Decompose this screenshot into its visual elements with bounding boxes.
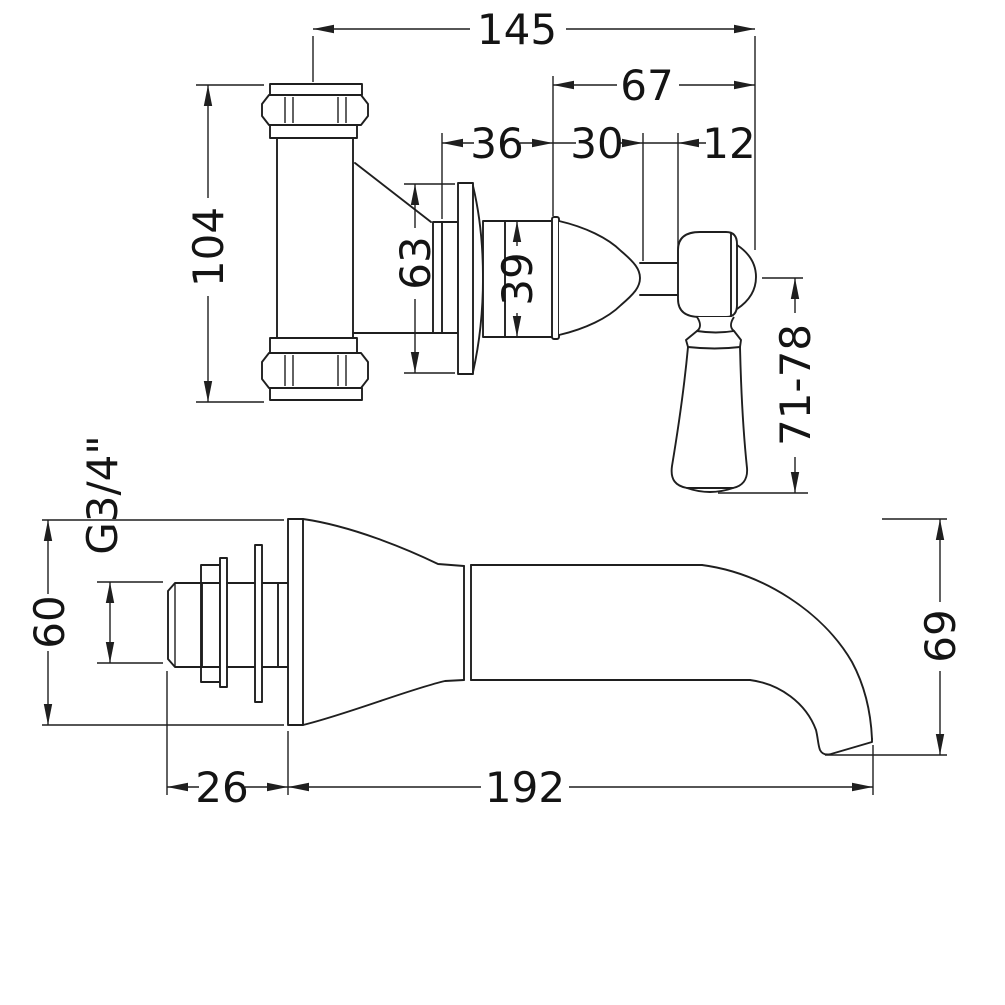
spout-thread-tail: [168, 583, 202, 667]
tee-bottom-hex-nut: [262, 353, 368, 388]
handle-stem: [640, 263, 678, 295]
dim-label-thread-size: G3/4": [78, 435, 127, 554]
handle-hub-dome: [737, 245, 756, 309]
spout-washer-inner: [220, 558, 227, 687]
handle-lever: [672, 317, 747, 488]
tap-dimension-drawing: 145 67 36 30 12 104 63 39 71-78 G3/4" 60…: [0, 0, 1005, 1005]
spout-flare-top: [303, 519, 464, 566]
valve-cartridge-cone: [559, 221, 640, 335]
tee-bottom-cap: [270, 388, 362, 400]
dim-label-cartridge-height: 39: [493, 252, 542, 305]
handle-hub: [678, 232, 737, 317]
tee-top-cap: [270, 84, 362, 95]
dim-label-backplate-height: 63: [391, 236, 440, 289]
tee-body: [277, 138, 353, 338]
dim-label-body-height: 104: [184, 207, 233, 287]
dim-label-overall-width: 145: [477, 5, 557, 54]
dim-label-thread-length: 26: [195, 763, 248, 812]
dim-label-stem-width: 12: [702, 119, 755, 168]
tee-top-hex-nut: [262, 95, 368, 125]
spout-elevation: [168, 519, 872, 755]
valve-backplate: [458, 183, 473, 374]
spout-tip: [750, 680, 872, 755]
dim-label-body-to-flange: 36: [470, 119, 523, 168]
tee-top-collar: [270, 125, 357, 138]
spout-dimensions: [42, 519, 947, 795]
spout-outer-curve: [702, 565, 872, 739]
dim-label-handle-drop-range: 71-78: [771, 324, 820, 446]
dim-label-handle-projection: 67: [620, 61, 673, 110]
spout-wall-plate: [288, 519, 303, 725]
technical-drawing-page: 145 67 36 30 12 104 63 39 71-78 G3/4" 60…: [0, 0, 1005, 1005]
tee-bottom-collar: [270, 338, 357, 353]
valve-cartridge-lip: [552, 217, 559, 339]
valve-backplate-dome: [473, 186, 483, 372]
dim-label-spout-reach: 192: [485, 763, 565, 812]
dim-label-flange-to-stem: 30: [570, 119, 623, 168]
spout-washer-outer: [255, 545, 262, 702]
dim-label-spout-backplate-height: 60: [25, 595, 74, 648]
spout-seam: [464, 565, 471, 680]
dim-label-spout-drop: 69: [916, 609, 965, 662]
tee-outlet-top-edge: [355, 163, 431, 222]
spout-flare-bottom: [303, 680, 464, 725]
dimension-labels: 145 67 36 30 12 104 63 39 71-78 G3/4" 60…: [25, 5, 965, 812]
